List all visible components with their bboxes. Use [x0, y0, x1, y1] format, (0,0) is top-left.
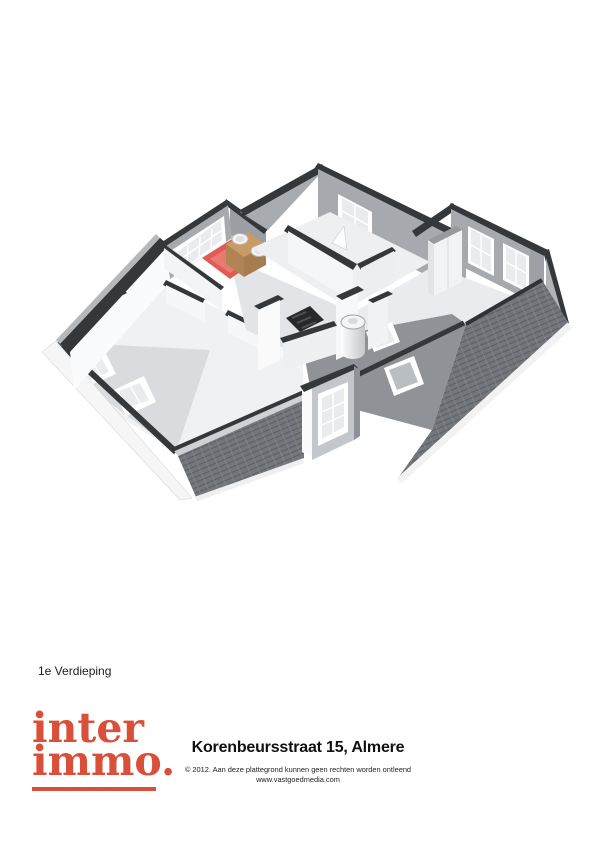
address-title: Korenbeursstraat 15, Almere [148, 739, 448, 757]
logo-underline [32, 787, 156, 791]
copyright-note: © 2012. Aan deze plattegrond kunnen geen… [148, 765, 448, 785]
sink-left [232, 234, 248, 245]
website-line: www.vastgoedmedia.com [148, 775, 448, 785]
dormer-left-cheek [302, 384, 312, 458]
copyright-line: © 2012. Aan deze plattegrond kunnen geen… [148, 765, 448, 775]
boiler [341, 315, 365, 359]
document-page: 1e Verdieping inter immo. Korenbeursstra… [0, 0, 600, 848]
dormer-right-cheek [354, 366, 360, 440]
floor-label: 1e Verdieping [38, 664, 111, 678]
stair-wall-face [258, 300, 280, 371]
footer: Korenbeursstraat 15, Almere © 2012. Aan … [148, 739, 448, 785]
